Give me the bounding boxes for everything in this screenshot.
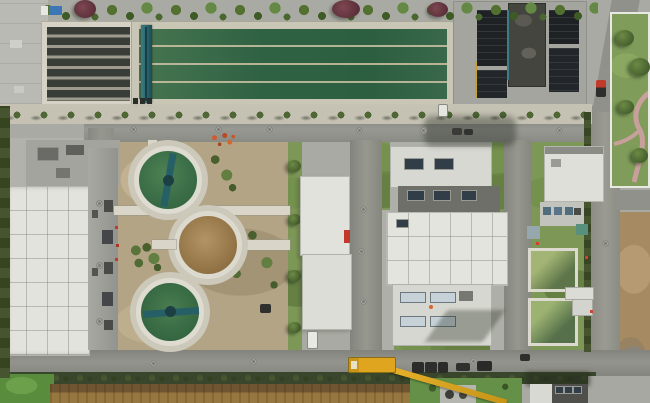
lane-separator — [139, 45, 447, 47]
road-center-vertical — [350, 140, 382, 352]
lane-separator — [139, 63, 447, 65]
skylight-light — [401, 317, 425, 326]
red-foliage-tree — [428, 2, 448, 17]
dark-truck — [425, 362, 437, 373]
red-foliage-tree — [332, 0, 360, 18]
hvac-unit — [66, 145, 84, 155]
safety-cone — [590, 310, 593, 313]
dark-roof-unit — [459, 291, 473, 301]
building-right-small — [544, 146, 604, 202]
red-railing-detail — [115, 258, 118, 261]
building-left-main-roof — [4, 186, 90, 356]
manhole-cover — [96, 262, 103, 269]
annex-window — [104, 200, 113, 212]
lawn-tree — [288, 160, 301, 172]
building-central-lower — [302, 254, 352, 330]
manhole-cover — [360, 206, 367, 213]
manhole-cover — [470, 358, 477, 365]
clarifier-walkway-west — [152, 240, 176, 249]
white-truck-cab — [41, 6, 48, 15]
yellow-curb-line — [475, 62, 477, 98]
manhole-cover — [96, 318, 103, 325]
white-car — [438, 104, 448, 117]
safety-cone — [536, 242, 539, 245]
skylight — [462, 191, 476, 200]
building-bottom-right — [530, 384, 588, 403]
lawn-tree — [288, 270, 301, 282]
clarifier-green-south — [136, 278, 204, 346]
manhole-cover — [250, 358, 257, 365]
skylight-light — [431, 293, 455, 302]
manhole-cover — [356, 127, 363, 134]
red-railing-detail — [116, 244, 119, 247]
road-stub-to-garden — [616, 190, 650, 210]
white-car — [307, 331, 318, 349]
orange-worker-dot — [429, 305, 433, 309]
red-foliage-tree — [74, 0, 96, 18]
blue-gray-pad — [527, 226, 540, 239]
manhole-cover — [420, 127, 427, 134]
annex-window — [102, 230, 113, 244]
crane-cab — [351, 361, 357, 369]
filter-basin-square — [42, 22, 135, 106]
equipment-dark-unit — [445, 390, 454, 399]
skylight-pair — [435, 159, 453, 169]
building-complex-dark-band — [398, 186, 500, 212]
dark-car — [260, 304, 271, 313]
aerial-photo-stage — [0, 0, 650, 403]
walled-garden — [610, 12, 650, 188]
dark-truck — [477, 361, 492, 371]
roof-unit — [551, 159, 561, 167]
lane-separator — [139, 81, 447, 83]
dark-car — [520, 354, 530, 361]
dark-truck — [438, 362, 448, 373]
roof-hatch — [574, 387, 581, 393]
equipment-pad-cluster — [540, 202, 584, 226]
building-complex-top — [390, 146, 492, 188]
teal-pad — [576, 224, 588, 235]
covered-tank-panel — [477, 70, 507, 98]
roof-hatch — [565, 387, 572, 393]
skylight-light — [401, 293, 425, 302]
red-equipment — [344, 230, 350, 243]
small-basin-north — [528, 248, 578, 292]
manhole-cover — [556, 127, 563, 134]
garden-tree — [632, 148, 648, 163]
building-central-upper — [300, 176, 350, 256]
clarifier-hub — [165, 306, 176, 317]
manhole-cover — [215, 126, 222, 133]
building-left-annex — [88, 148, 118, 350]
building-complex-main-roof — [386, 212, 508, 286]
dark-car — [464, 129, 473, 135]
annex-window — [92, 268, 98, 276]
tree-row-top — [36, 0, 598, 24]
garden-tree — [616, 30, 634, 46]
manhole-cover — [360, 298, 367, 305]
pavement-bottom-right — [588, 376, 650, 403]
gantry-walk-line — [145, 27, 147, 101]
clarifier-brown-middle — [174, 211, 242, 279]
blue-container — [49, 6, 62, 15]
annex-window — [102, 292, 113, 306]
mechanism-block — [566, 288, 593, 299]
traveling-bridge-gantry — [141, 25, 152, 103]
pump-unit-blue — [543, 207, 551, 215]
lawn-corner-bottom-left — [0, 374, 54, 403]
clarifier-green-north — [134, 146, 202, 214]
pump-unit-blue — [554, 207, 562, 215]
hvac-unit — [56, 168, 70, 178]
red-vehicle — [596, 80, 606, 97]
annex-window — [104, 320, 113, 330]
pavement-marking — [10, 40, 22, 48]
orange-material-pile — [206, 130, 240, 152]
hvac-unit — [38, 148, 58, 160]
skylight — [408, 191, 424, 200]
manhole-cover — [150, 360, 157, 367]
crane-body — [348, 357, 396, 373]
skylight — [434, 191, 450, 200]
dark-car — [452, 128, 462, 135]
pavement-marking — [14, 86, 24, 93]
manhole-cover — [130, 126, 137, 133]
pump-unit-dark — [574, 208, 581, 215]
garden-tree — [630, 58, 650, 76]
roof-edge-dark — [545, 147, 603, 154]
lawn-tree — [289, 322, 301, 333]
safety-cone — [585, 256, 588, 259]
red-railing-detail — [115, 226, 118, 229]
manhole-cover — [602, 240, 609, 247]
aeration-water — [139, 29, 447, 99]
clarifier-hub — [163, 175, 174, 186]
aeration-basin-long — [132, 22, 454, 106]
annex-window — [92, 210, 98, 218]
dark-truck — [412, 362, 424, 373]
covered-tank-panel — [549, 48, 579, 92]
manhole-cover — [266, 126, 273, 133]
road-rightcenter-vertical — [504, 140, 531, 352]
manhole-cover — [358, 248, 365, 255]
dark-truck — [456, 363, 470, 371]
pump-unit-blue — [565, 207, 573, 215]
manhole-cover — [96, 200, 103, 207]
garden-tree — [618, 100, 634, 114]
skylight-pair — [405, 159, 423, 169]
roof-hatch — [556, 387, 563, 393]
hedge-left-edge — [0, 106, 10, 378]
annex-window — [104, 262, 113, 274]
filter-lanes — [47, 27, 130, 101]
farm-field-strip — [50, 384, 418, 403]
roof-hatch — [397, 220, 408, 227]
